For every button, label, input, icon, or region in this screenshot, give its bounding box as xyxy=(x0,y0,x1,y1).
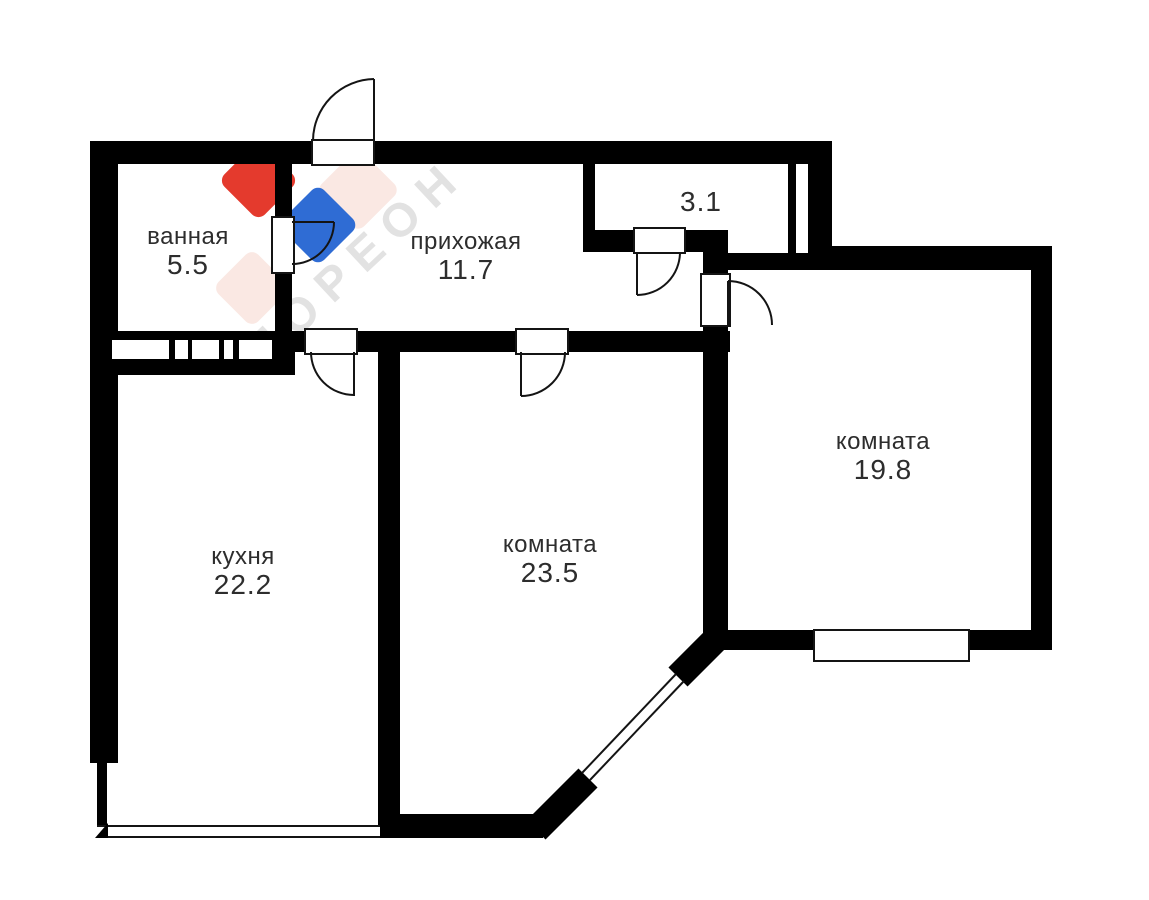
bathroom-door-arc xyxy=(292,222,334,264)
entrance-door-arc xyxy=(313,79,374,141)
room-label-bathroom: ванная 5.5 xyxy=(147,224,229,280)
kitchen-door-arc xyxy=(311,352,354,395)
room-mid-door-arc xyxy=(521,352,565,396)
room-name: комната xyxy=(503,532,597,558)
closet-door-arc xyxy=(637,252,680,295)
room-name: ванная xyxy=(147,224,229,250)
room-right-door-arc xyxy=(728,281,772,325)
bay-window-line-inner xyxy=(590,681,684,780)
room-label-room-right: комната 19.8 xyxy=(836,429,930,485)
room-area: 11.7 xyxy=(411,255,522,285)
room-label-hallway: прихожая 11.7 xyxy=(411,229,522,285)
room-label-kitchen: кухня 22.2 xyxy=(211,544,275,600)
room-name: комната xyxy=(836,429,930,455)
bay-wall-upper xyxy=(678,639,716,677)
room-name: кухня xyxy=(211,544,275,570)
bay-window-line-outer xyxy=(582,674,676,773)
kitchen-window-corner-miter xyxy=(95,823,108,838)
room-area: 3.1 xyxy=(680,187,722,217)
doors-and-bay-overlay xyxy=(0,0,1149,900)
room-area: 23.5 xyxy=(503,558,597,588)
room-label-room-mid: комната 23.5 xyxy=(503,532,597,588)
room-label-closet: 3.1 xyxy=(680,187,722,217)
room-area: 19.8 xyxy=(836,455,930,485)
bay-wall-lower xyxy=(536,778,588,830)
room-area: 5.5 xyxy=(147,250,229,280)
room-name: прихожая xyxy=(411,229,522,255)
room-area: 22.2 xyxy=(211,570,275,600)
floor-plan: МОРЕОН xyxy=(0,0,1149,900)
